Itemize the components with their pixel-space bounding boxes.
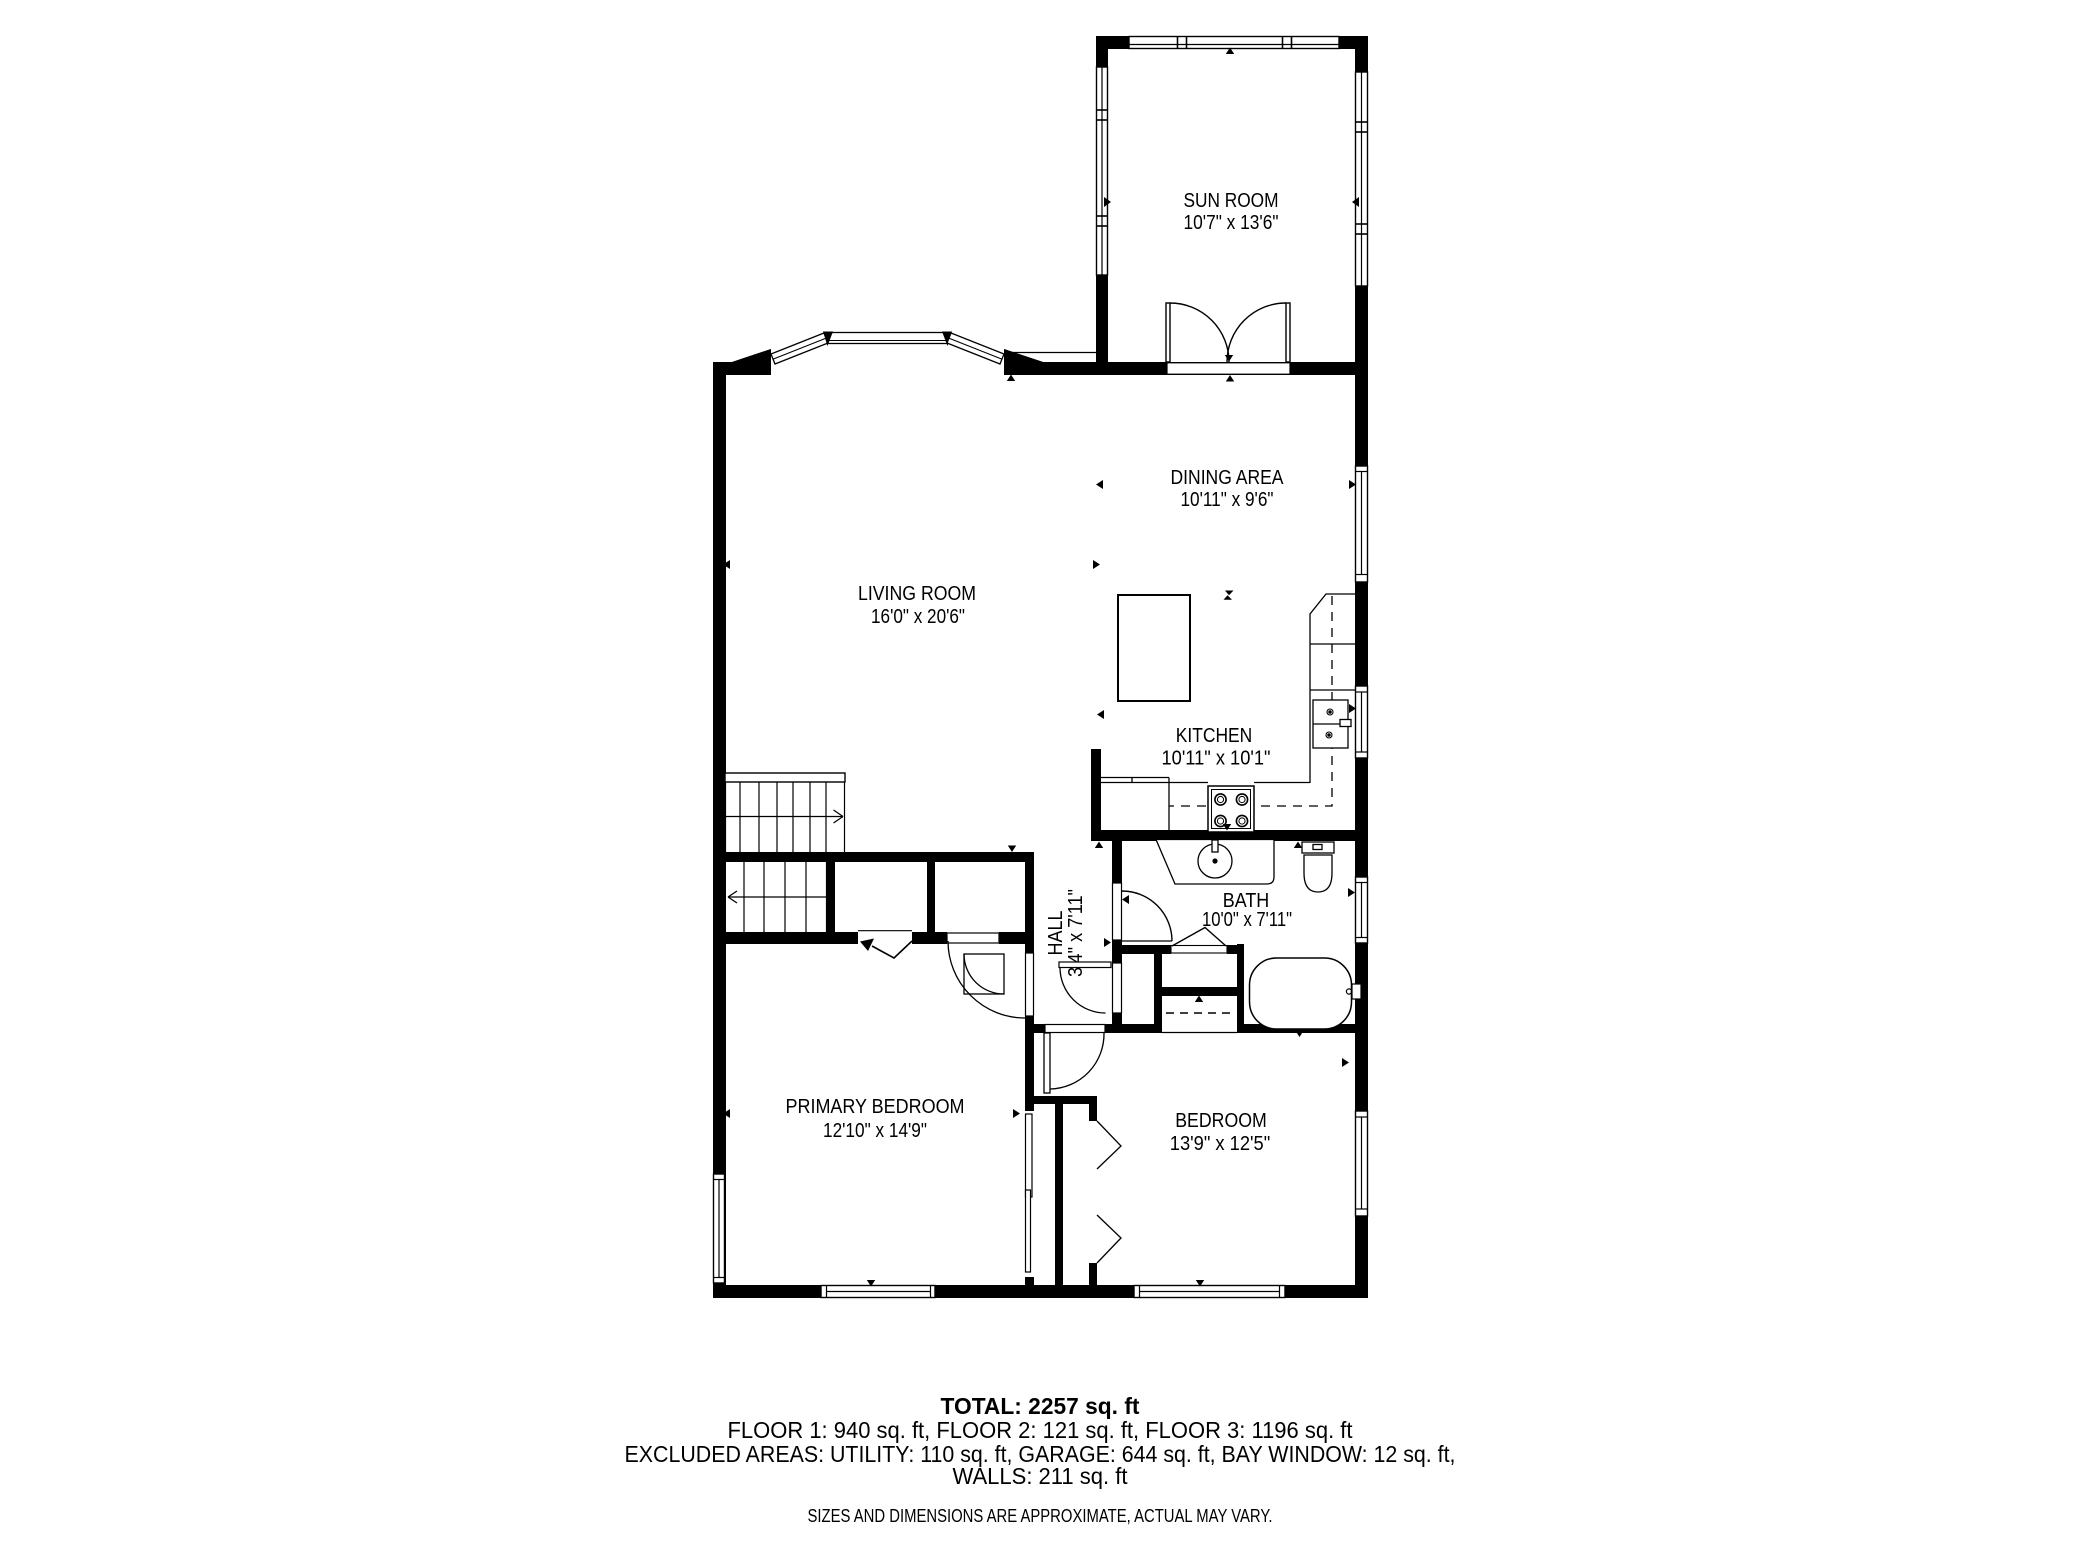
svg-text:KITCHEN: KITCHEN	[1176, 725, 1253, 747]
svg-text:13'9" x 12'5": 13'9" x 12'5"	[1170, 1133, 1271, 1155]
svg-text:DINING AREA: DINING AREA	[1171, 467, 1285, 489]
svg-text:LIVING ROOM: LIVING ROOM	[858, 583, 976, 605]
svg-text:TOTAL: 2257 sq. ft: TOTAL: 2257 sq. ft	[941, 1393, 1140, 1419]
svg-text:10'0" x 7'11": 10'0" x 7'11"	[1202, 909, 1292, 931]
svg-text:SIZES AND DIMENSIONS ARE APPRO: SIZES AND DIMENSIONS ARE APPROXIMATE, AC…	[808, 1506, 1273, 1526]
svg-text:10'11" x 10'1": 10'11" x 10'1"	[1162, 748, 1271, 770]
svg-text:10'11" x 9'6": 10'11" x 9'6"	[1181, 489, 1274, 511]
svg-text:HALL: HALL	[1045, 911, 1067, 956]
svg-text:BEDROOM: BEDROOM	[1175, 1110, 1267, 1132]
svg-text:12'10" x 14'9": 12'10" x 14'9"	[823, 1120, 927, 1142]
svg-text:10'7" x 13'6": 10'7" x 13'6"	[1184, 212, 1279, 234]
svg-text:16'0" x 20'6": 16'0" x 20'6"	[871, 606, 965, 628]
svg-text:WALLS: 211 sq. ft: WALLS: 211 sq. ft	[953, 1463, 1129, 1489]
svg-text:PRIMARY BEDROOM: PRIMARY BEDROOM	[786, 1096, 965, 1118]
svg-text:FLOOR 1: 940 sq. ft, FLOOR 2:: FLOOR 1: 940 sq. ft, FLOOR 2: 121 sq. ft…	[728, 1417, 1354, 1443]
svg-text:SUN ROOM: SUN ROOM	[1184, 190, 1279, 212]
